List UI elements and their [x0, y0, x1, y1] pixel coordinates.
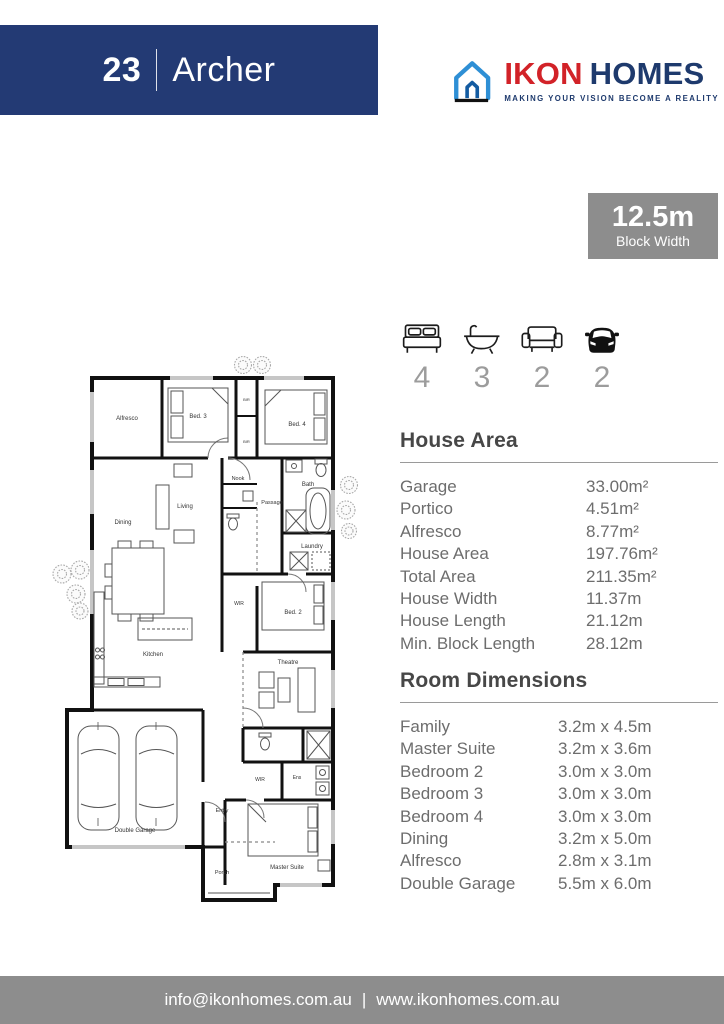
room-dimensions-section: Room Dimensions Family3.2m x 4.5m Master…: [400, 669, 718, 895]
room-dimension-row: Alfresco2.8m x 3.1m: [400, 850, 718, 872]
spec-label: House Area: [400, 543, 586, 565]
room-label-wir1: WIR: [234, 601, 244, 607]
room-dimension-row: Family3.2m x 4.5m: [400, 716, 718, 738]
spec-value: 2.8m x 3.1m: [558, 850, 718, 872]
spec-label: Bedroom 4: [400, 806, 558, 828]
spec-value: 5.5m x 6.0m: [558, 873, 718, 895]
room-label-dining: Dining: [114, 520, 131, 526]
room-label-nook: Nook: [232, 476, 245, 482]
room-label-ens: Ens: [293, 775, 302, 781]
outer-walls: [67, 378, 333, 900]
spec-value: 3.2m x 4.5m: [558, 716, 718, 738]
spec-value: 11.37m: [586, 588, 718, 610]
spec-label: Alfresco: [400, 850, 558, 872]
spec-label: Master Suite: [400, 738, 558, 760]
house-area-section: House Area Garage33.00m² Portico4.51m² A…: [400, 429, 718, 655]
room-label-bed3: Bed. 3: [189, 414, 207, 420]
spec-label: Garage: [400, 476, 586, 498]
spec-value: 21.12m: [586, 610, 718, 632]
living-count: 2: [534, 362, 551, 394]
bathrooms-count: 3: [474, 362, 491, 394]
room-dimension-row: Bedroom 23.0m x 3.0m: [400, 761, 718, 783]
feature-stats: 4 3 2: [392, 320, 634, 394]
house-area-row: House Length21.12m: [400, 610, 718, 632]
room-label-bed4: Bed. 4: [288, 422, 306, 428]
house-area-row: House Area197.76m²: [400, 543, 718, 565]
spec-value: 33.00m²: [586, 476, 718, 498]
ikon-homes-logo: IKONHOMES MAKING YOUR VISION BECOME A RE…: [449, 44, 719, 116]
sofa-icon: [520, 320, 564, 358]
room-dimension-row: Bedroom 43.0m x 3.0m: [400, 806, 718, 828]
spec-value: 3.0m x 3.0m: [558, 783, 718, 805]
room-label-passage: Passage: [261, 500, 282, 506]
footer-separator: |: [362, 990, 366, 1010]
room-label-alfresco: Alfresco: [116, 416, 138, 422]
block-width-value: 12.5m: [612, 202, 694, 232]
brand-second-word: HOMES: [590, 56, 705, 91]
house-area-title: House Area: [400, 429, 718, 453]
stat-bedrooms: 4: [392, 320, 452, 394]
room-label-porch: Porch: [215, 870, 229, 876]
room-dimensions-title: Room Dimensions: [400, 669, 718, 693]
bathtub-icon: [460, 320, 504, 358]
brand-tagline: MAKING YOUR VISION BECOME A REALITY: [504, 94, 719, 103]
brochure-page: 23 Archer IKONHOMES MAKING YOUR VISION B…: [0, 0, 724, 1024]
bedrooms-count: 4: [414, 362, 431, 394]
room-label-laundry: Laundry: [301, 544, 323, 550]
footer-bar: info@ikonhomes.com.au | www.ikonhomes.co…: [0, 976, 724, 1024]
room-label-entry: Entry: [216, 808, 229, 814]
garage-count: 2: [594, 362, 611, 394]
house-area-row: House Width11.37m: [400, 588, 718, 610]
house-area-row: Min. Block Length28.12m: [400, 633, 718, 655]
room-label-kitchen: Kitchen: [143, 652, 163, 658]
brand-name: IKONHOMES: [504, 57, 719, 91]
car-icon: [580, 320, 624, 358]
room-label-double-garage: Double Garage: [115, 828, 156, 834]
spec-value: 8.77m²: [586, 521, 718, 543]
room-label-living: Living: [177, 504, 193, 510]
house-area-row: Garage33.00m²: [400, 476, 718, 498]
spec-value: 3.2m x 5.0m: [558, 828, 718, 850]
room-label-bir2: BIR: [243, 439, 250, 444]
spec-label: Alfresco: [400, 521, 586, 543]
room-label-bath: Bath: [302, 482, 314, 488]
room-label-bir1: BIR: [243, 397, 250, 402]
spec-value: 197.76m²: [586, 543, 718, 565]
bed-icon: [400, 320, 444, 358]
room-dimensions-list: Family3.2m x 4.5m Master Suite3.2m x 3.6…: [400, 716, 718, 895]
spec-label: House Length: [400, 610, 586, 632]
spec-label: Total Area: [400, 566, 586, 588]
room-dimension-row: Master Suite3.2m x 3.6m: [400, 738, 718, 760]
spec-label: Bedroom 2: [400, 761, 558, 783]
block-width-label: Block Width: [616, 232, 690, 251]
design-name: Archer: [172, 51, 275, 90]
spec-label: Double Garage: [400, 873, 558, 895]
room-dimension-row: Bedroom 33.0m x 3.0m: [400, 783, 718, 805]
spec-label: Portico: [400, 498, 586, 520]
room-dimension-row: Dining3.2m x 5.0m: [400, 828, 718, 850]
spec-value: 28.12m: [586, 633, 718, 655]
floor-plan: Alfresco Bed. 3 BIR BIR Bed. 4 Bath Nook…: [50, 352, 362, 904]
spec-value: 3.0m x 3.0m: [558, 761, 718, 783]
spec-value: 4.51m²: [586, 498, 718, 520]
spec-label: Family: [400, 716, 558, 738]
house-area-row: Total Area211.35m²: [400, 566, 718, 588]
room-dimension-row: Double Garage5.5m x 6.0m: [400, 873, 718, 895]
house-area-rule: [400, 462, 718, 463]
spec-label: Min. Block Length: [400, 633, 586, 655]
room-dimensions-rule: [400, 702, 718, 703]
stat-bathrooms: 3: [452, 320, 512, 394]
stat-living: 2: [512, 320, 572, 394]
house-area-row: Alfresco8.77m²: [400, 521, 718, 543]
spec-value: 3.2m x 3.6m: [558, 738, 718, 760]
spec-label: Bedroom 3: [400, 783, 558, 805]
room-label-bed2: Bed. 2: [284, 610, 302, 616]
room-label-theatre: Theatre: [278, 660, 299, 666]
room-label-master-suite: Master Suite: [270, 865, 304, 871]
block-width-badge: 12.5m Block Width: [588, 193, 718, 259]
room-label-wir2: WIR: [255, 777, 265, 783]
house-area-row: Portico4.51m²: [400, 498, 718, 520]
brand-first-word: IKON: [504, 56, 582, 91]
spec-label: Dining: [400, 828, 558, 850]
title-banner: 23 Archer: [0, 25, 378, 115]
title-divider: [156, 49, 157, 91]
logo-text: IKONHOMES MAKING YOUR VISION BECOME A RE…: [504, 57, 719, 103]
spec-value: 3.0m x 3.0m: [558, 806, 718, 828]
house-area-list: Garage33.00m² Portico4.51m² Alfresco8.77…: [400, 476, 718, 655]
footer-website-link[interactable]: www.ikonhomes.com.au: [376, 990, 559, 1010]
design-number: 23: [103, 51, 142, 90]
stat-garage: 2: [572, 320, 632, 394]
footer-email-link[interactable]: info@ikonhomes.com.au: [164, 990, 351, 1010]
spec-label: House Width: [400, 588, 586, 610]
spec-value: 211.35m²: [586, 566, 718, 588]
house-logo-icon: [449, 48, 495, 112]
